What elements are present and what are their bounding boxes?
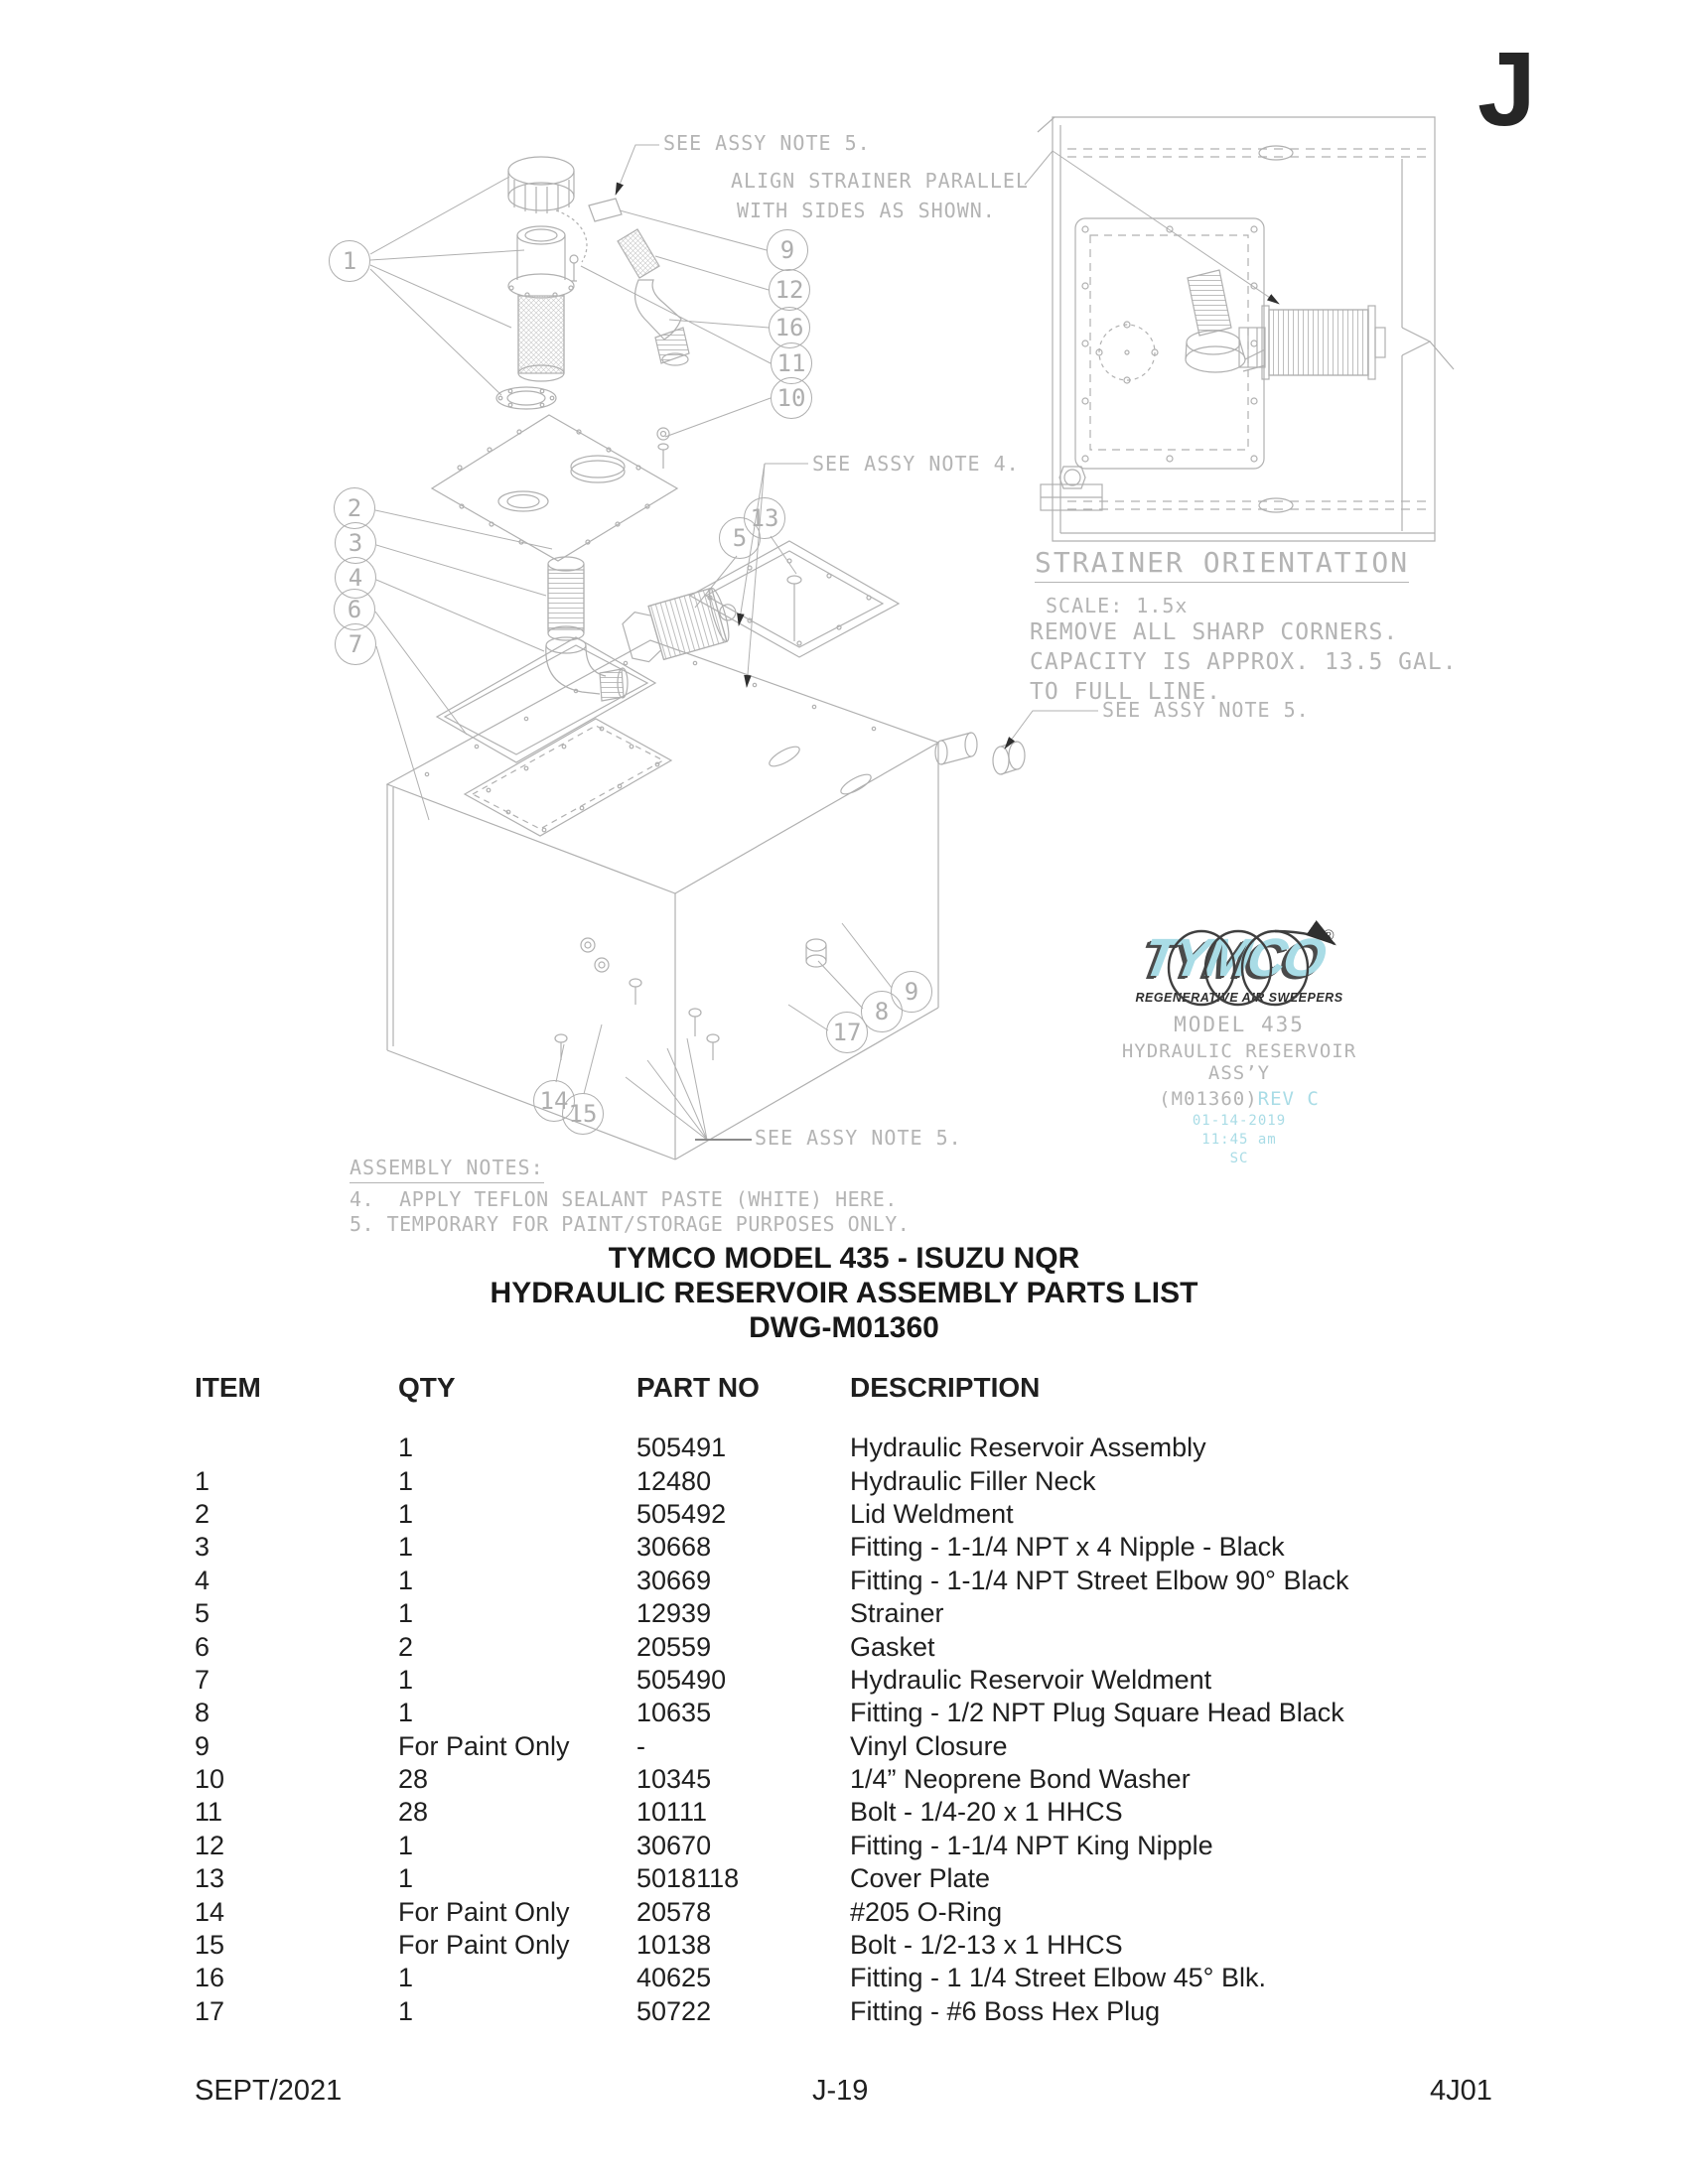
detail-note-3: TO FULL LINE.	[1030, 679, 1221, 705]
table-row: 15For Paint Only10138Bolt - 1/2-13 x 1 H…	[195, 1929, 1505, 1962]
stamp-initials: SC	[1110, 1151, 1368, 1166]
callout-10: 10	[771, 377, 812, 419]
table-row: 3130668Fitting - 1-1/4 NPT x 4 Nipple - …	[195, 1531, 1505, 1564]
callout-5: 5	[719, 517, 761, 559]
table-row: 16140625Fitting - 1 1/4 Street Elbow 45°…	[195, 1962, 1505, 1994]
detail-note-1: REMOVE ALL SHARP CORNERS.	[1030, 619, 1398, 645]
annotation-see-note-5-bottom: SEE ASSY NOTE 5.	[755, 1126, 962, 1150]
callout-12: 12	[769, 269, 810, 311]
title-line-3: DWG-M01360	[0, 1310, 1688, 1345]
table-row: 1028103451/4” Neoprene Bond Washer	[195, 1763, 1505, 1796]
table-row: 14For Paint Only20578#205 O-Ring	[195, 1895, 1505, 1928]
table-row: 112810111Bolt - 1/4-20 x 1 HHCS	[195, 1796, 1505, 1829]
callout-9b: 9	[891, 971, 932, 1013]
callout-9: 9	[767, 229, 808, 271]
stamp-time: 11:45 am	[1110, 1132, 1368, 1148]
table-row: 8110635Fitting - 1/2 NPT Plug Square Hea…	[195, 1697, 1505, 1729]
tymco-logo-block: TYMCO® REGENERATIVE AIR SWEEPERS MODEL 4…	[1110, 927, 1368, 1166]
parts-table-header: ITEM QTY PART NO DESCRIPTION	[195, 1370, 1505, 1406]
callout-15: 15	[562, 1093, 604, 1135]
annotation-align-line1: ALIGN STRAINER PARALLEL	[731, 169, 1029, 193]
stamp-date: 01-14-2019	[1110, 1113, 1368, 1129]
footer-page-number: J-19	[812, 2075, 868, 2108]
header-description: DESCRIPTION	[850, 1372, 1505, 1404]
table-row: 71505490Hydraulic Reservoir Weldment	[195, 1664, 1505, 1697]
stamp-assembly: HYDRAULIC RESERVOIR ASS’Y	[1110, 1040, 1368, 1084]
header-part-no: PART NO	[636, 1372, 850, 1404]
table-row: 1315018118Cover Plate	[195, 1862, 1505, 1895]
strainer-orientation-detail	[1038, 117, 1454, 541]
title-line-2: HYDRAULIC RESERVOIR ASSEMBLY PARTS LIST	[0, 1276, 1688, 1310]
callout-7: 7	[335, 623, 376, 665]
document-page: { "page": { "section_letter": "J", "foot…	[0, 0, 1688, 2184]
table-row: 6220559Gasket	[195, 1630, 1505, 1663]
detail-title: STRAINER ORIENTATION	[1035, 546, 1409, 583]
stamp-model: MODEL 435	[1110, 1013, 1368, 1036]
main-exploded-view	[387, 157, 1025, 1160]
title-line-1: TYMCO MODEL 435 - ISUZU NQR	[0, 1241, 1688, 1276]
drawing-stamp: MODEL 435 HYDRAULIC RESERVOIR ASS’Y (M01…	[1110, 1013, 1368, 1166]
header-qty: QTY	[398, 1372, 636, 1404]
assembly-note-5: 5. TEMPORARY FOR PAINT/STORAGE PURPOSES …	[350, 1212, 910, 1236]
table-row: 4130669Fitting - 1-1/4 NPT Street Elbow …	[195, 1565, 1505, 1597]
annotation-see-note-4: SEE ASSY NOTE 4.	[812, 452, 1020, 476]
table-row: 1112480Hydraulic Filler Neck	[195, 1464, 1505, 1497]
tymco-logo: TYMCO	[1139, 927, 1329, 989]
table-row: 17150722Fitting - #6 Boss Hex Plug	[195, 1995, 1505, 2028]
parts-table: ITEM QTY PART NO DESCRIPTION 1505491Hydr…	[195, 1370, 1505, 2028]
callout-1: 1	[329, 240, 370, 282]
table-row: 12130670Fitting - 1-1/4 NPT King Nipple	[195, 1830, 1505, 1862]
logo-tagline: REGENERATIVE AIR SWEEPERS	[1110, 991, 1368, 1005]
stamp-drawing-rev: (M01360)REV C	[1110, 1088, 1368, 1110]
table-row: 5112939Strainer	[195, 1597, 1505, 1630]
table-row: 9For Paint Only-Vinyl Closure	[195, 1730, 1505, 1763]
detail-scale: SCALE: 1.5x	[1046, 594, 1188, 617]
title-block: TYMCO MODEL 435 - ISUZU NQR HYDRAULIC RE…	[0, 1241, 1688, 1345]
footer-date: SEPT/2021	[195, 2075, 342, 2108]
detail-note-2: CAPACITY IS APPROX. 13.5 GAL.	[1030, 649, 1458, 675]
annotation-align-line2: WITH SIDES AS SHOWN.	[737, 199, 996, 222]
assembly-note-4: 4. APPLY TEFLON SEALANT PASTE (WHITE) HE…	[350, 1187, 898, 1211]
header-item: ITEM	[195, 1372, 398, 1404]
assembly-notes-heading: ASSEMBLY NOTES:	[350, 1156, 544, 1183]
table-row: 21505492Lid Weldment	[195, 1498, 1505, 1531]
annotation-see-note-5-top: SEE ASSY NOTE 5.	[663, 131, 871, 155]
section-letter: J	[1477, 30, 1536, 150]
footer-doc-code: 4J01	[1430, 2075, 1492, 2108]
table-row: 1505491Hydraulic Reservoir Assembly	[195, 1432, 1505, 1464]
